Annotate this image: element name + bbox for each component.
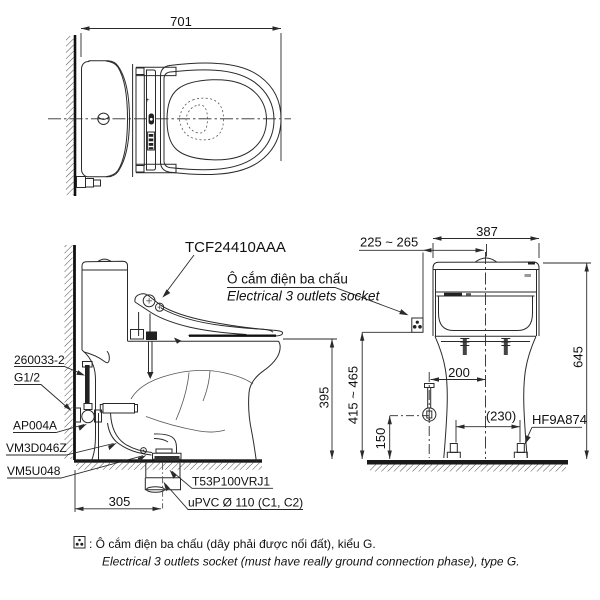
svg-text:HF9A874: HF9A874 bbox=[532, 412, 587, 427]
svg-text:260033-2: 260033-2 bbox=[14, 353, 65, 367]
svg-text:395: 395 bbox=[317, 387, 332, 409]
svg-text:+: + bbox=[146, 97, 150, 104]
svg-text:Ô cắm điện ba chấu: Ô cắm điện ba chấu bbox=[227, 272, 348, 287]
svg-text:701: 701 bbox=[170, 14, 192, 29]
svg-text:T53P100VRJ1: T53P100VRJ1 bbox=[192, 475, 270, 489]
svg-text:225 ~ 265: 225 ~ 265 bbox=[360, 235, 418, 250]
svg-text:VM5U048: VM5U048 bbox=[7, 464, 61, 478]
svg-text:TCF24410AAA: TCF24410AAA bbox=[185, 239, 286, 256]
svg-text:VM3D046Z: VM3D046Z bbox=[6, 441, 67, 455]
svg-text:AP004A: AP004A bbox=[13, 419, 57, 433]
svg-text:Electrical 3 outlets socket (m: Electrical 3 outlets socket (must have r… bbox=[102, 555, 520, 569]
svg-text:200: 200 bbox=[448, 365, 470, 380]
svg-text:150: 150 bbox=[373, 428, 388, 450]
svg-text:387: 387 bbox=[476, 224, 498, 239]
svg-text:645: 645 bbox=[571, 346, 586, 368]
svg-text:G1/2: G1/2 bbox=[14, 371, 40, 385]
svg-text:Electrical 3 outlets socket: Electrical 3 outlets socket bbox=[227, 289, 381, 304]
svg-text:415 ~ 465: 415 ~ 465 bbox=[346, 366, 361, 424]
svg-text:305: 305 bbox=[109, 494, 131, 509]
svg-text:(230): (230) bbox=[486, 409, 516, 424]
svg-text:uPVC Ø 110 (C1, C2): uPVC Ø 110 (C1, C2) bbox=[188, 496, 303, 510]
svg-text:: Ô cắm điện ba chấu (dây phải: : Ô cắm điện ba chấu (dây phải được nối … bbox=[89, 536, 376, 551]
